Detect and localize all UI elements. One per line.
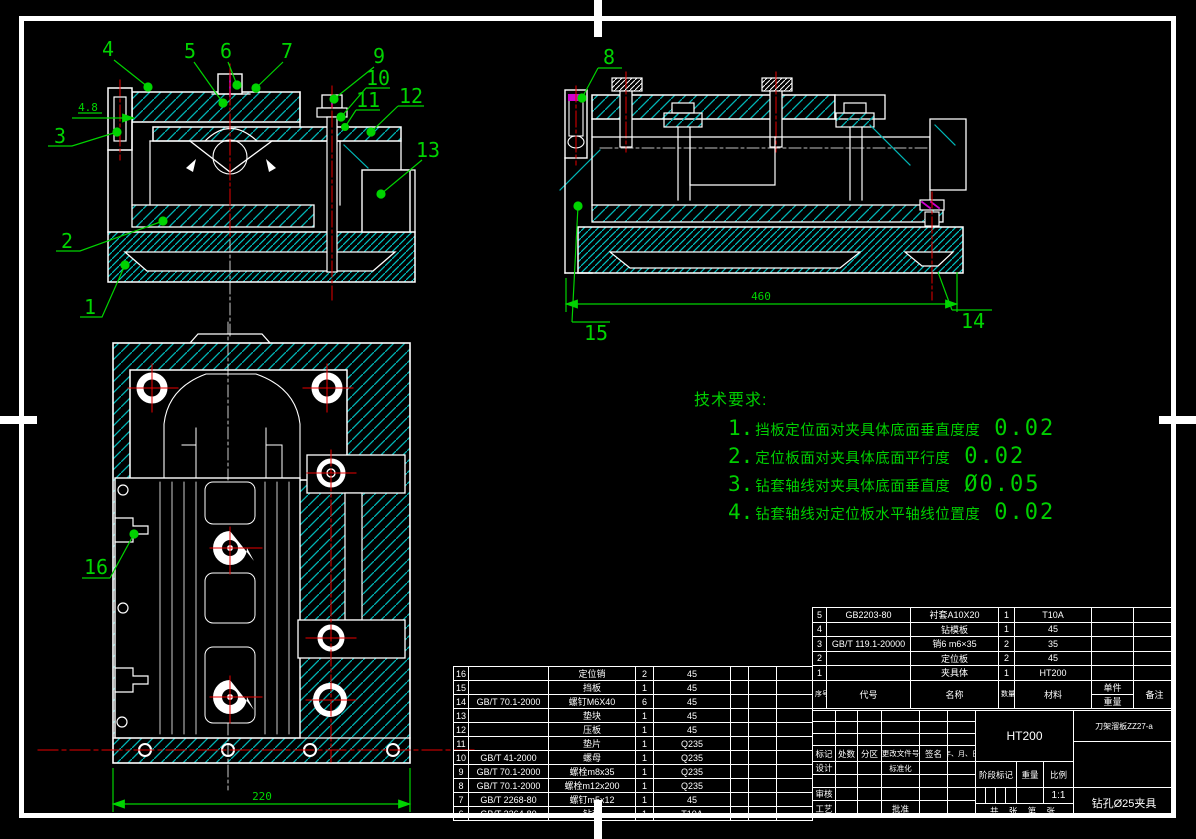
centering-mark-right — [1159, 416, 1196, 424]
drawing-frame — [19, 16, 1176, 818]
centering-mark-top — [594, 0, 602, 37]
centering-mark-left — [0, 416, 37, 424]
centering-mark-bottom — [594, 800, 602, 839]
cad-drawing-sheet: 4.8 4 5 6 7 9 10 11 12 13 3 2 1 — [0, 0, 1196, 839]
